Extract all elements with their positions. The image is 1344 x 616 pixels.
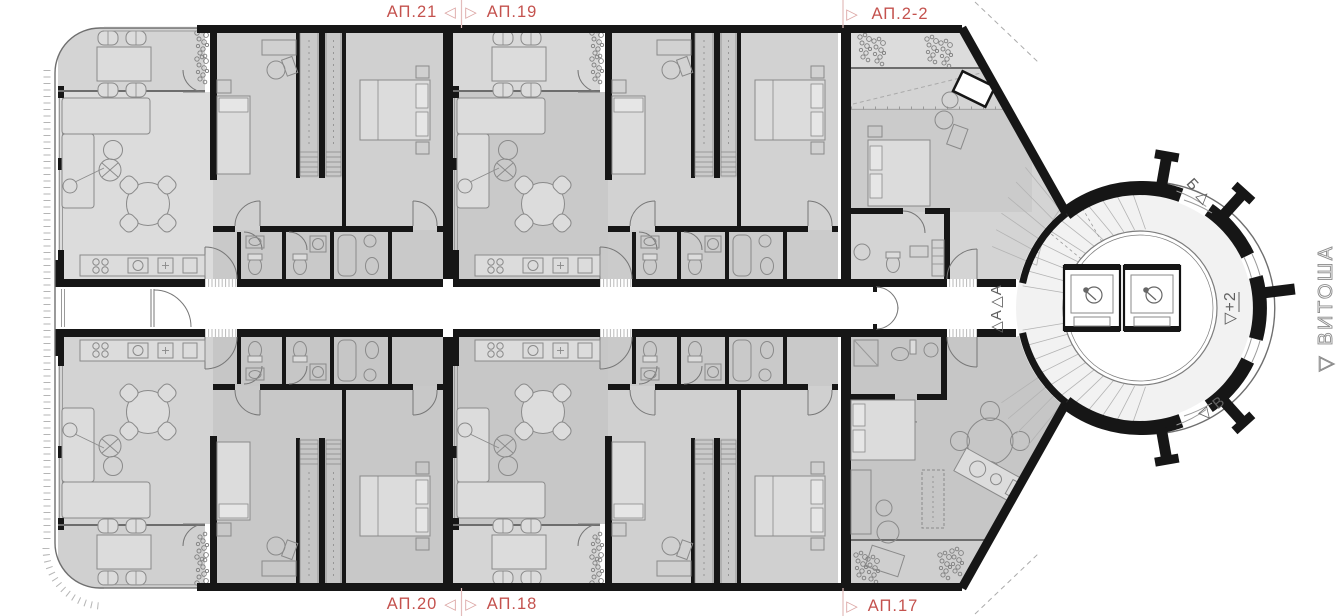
direction-label-vitosha: ▽ ВИТОША [1315,244,1337,371]
apartment-ap20 [58,329,443,590]
label-ap20: АП.20 [387,595,438,613]
double-bed [851,400,915,460]
marker-triangle-icon: ▷ [846,6,858,23]
section-marker-a-bottom: △А [988,309,1005,333]
marker-triangle-right-icon: ▷ [465,4,477,21]
marker-triangle-icon: ▷ [846,598,858,615]
marker-triangle-left-icon: ◁ [444,596,456,613]
apartment-ap21 [58,26,443,287]
label-ap19: АП.19 [487,3,538,21]
apartment-ap18 [453,329,838,590]
level-marker: ▽+2 [1222,291,1239,325]
label-ap17: АП.17 [868,597,919,615]
marker-triangle-left-icon: ◁ [444,4,456,21]
entry-threshold [947,279,977,287]
label-ap21: АП.21 [387,3,438,21]
apartment-ap19 [453,26,838,287]
floor-plan-drawing: АП.21 ◁ ▷ АП.19 ▷ АП.2-2 АП.20 ◁ ▷ АП.18… [0,0,1344,616]
elevator-left [1064,264,1120,332]
elevator-right [1124,264,1180,332]
label-ap18: АП.18 [487,595,538,613]
section-marker-a-top: △А [988,284,1005,308]
marker-triangle-right-icon: ▷ [465,596,477,613]
entry-threshold [947,329,977,337]
label-ap2-2: АП.2-2 [871,5,928,23]
floor-plan-page: АП.21 ◁ ▷ АП.19 ▷ АП.2-2 АП.20 ◁ ▷ АП.18… [0,0,1344,616]
